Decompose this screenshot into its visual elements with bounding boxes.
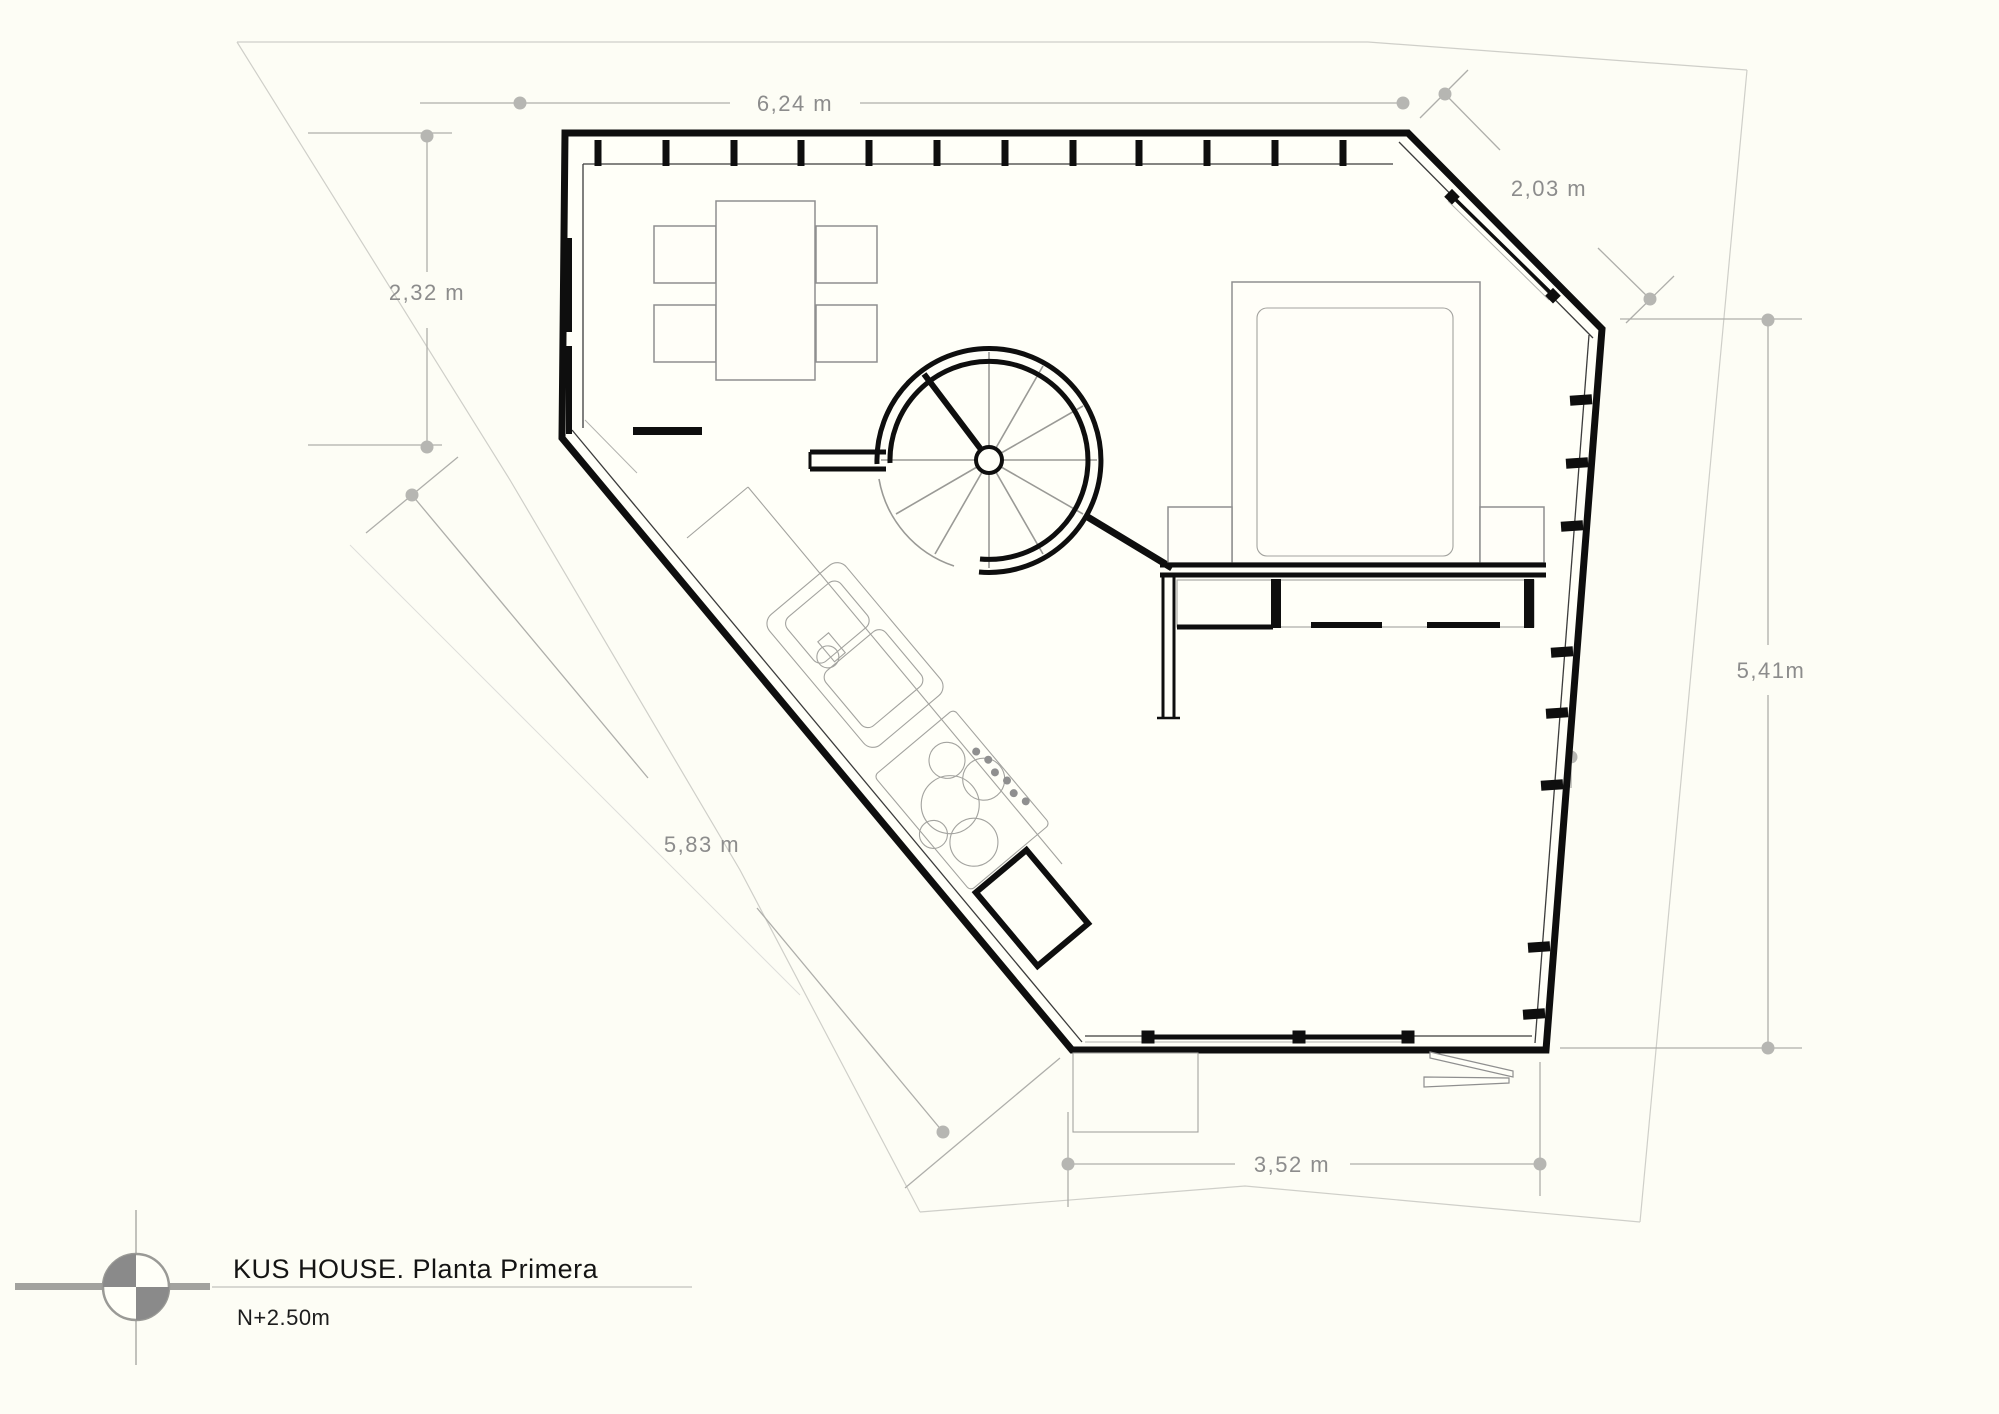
window-bar — [566, 346, 572, 434]
mullion-post — [1136, 140, 1143, 166]
dimension-dot — [1762, 1042, 1775, 1055]
dimension-label: 3,52 m — [1254, 1152, 1330, 1177]
extension-line — [905, 1058, 1060, 1188]
boundary-top-line — [237, 42, 1747, 70]
dimension-label: 6,24 m — [757, 91, 833, 116]
boundary-bottom-line — [920, 1186, 1640, 1222]
dimension-line — [1598, 248, 1650, 299]
dimension-dot — [1762, 314, 1775, 327]
dim-top-width: 6,24 m — [420, 91, 1410, 116]
louver-block — [1566, 457, 1589, 469]
entry-step-outline — [1073, 1053, 1198, 1132]
mullion-post — [1070, 140, 1077, 166]
louver-block — [1546, 707, 1569, 719]
panel-end-block — [1293, 1031, 1306, 1044]
dimension-dot — [1062, 1158, 1075, 1171]
dimension-label: 5,83 m — [664, 832, 740, 857]
panel-end-block — [1402, 1031, 1415, 1044]
louver-block — [1528, 941, 1551, 953]
compass-se-quadrant — [136, 1287, 169, 1320]
mullion-post — [1340, 140, 1347, 166]
mullion-post — [798, 140, 805, 166]
dimension-dot — [421, 441, 434, 454]
mullion-post — [663, 140, 670, 166]
dining-chair — [816, 226, 877, 283]
dimension-dot — [421, 130, 434, 143]
dining-chair — [654, 226, 716, 283]
dimension-label: 2,32 m — [389, 280, 465, 305]
dimension-line — [1445, 94, 1500, 150]
bed-frame — [1232, 282, 1480, 563]
louver-block — [1551, 646, 1574, 658]
mullion-post — [934, 140, 941, 166]
dimension-dot — [1439, 88, 1452, 101]
floor-plan-canvas: 6,24 m 2,03 m 2,32 m 0,50 m — [0, 0, 1999, 1414]
drawing-title: KUS HOUSE. Planta Primera — [233, 1254, 599, 1284]
floor-plan-page: 6,24 m 2,03 m 2,32 m 0,50 m — [0, 0, 1999, 1414]
compass-nw-quadrant — [103, 1254, 136, 1287]
north-indicator-icon — [103, 1254, 169, 1320]
dimension-line — [412, 495, 648, 778]
dimension-dot — [1644, 293, 1657, 306]
stair-center-post — [976, 447, 1002, 473]
louver-block — [1541, 779, 1564, 791]
nightstand-right — [1480, 507, 1544, 563]
dimension-dot — [1397, 97, 1410, 110]
wardrobe-end-post — [1524, 579, 1534, 628]
window-bar — [566, 238, 572, 332]
boundary-right-line — [1640, 70, 1747, 1222]
dimension-dot — [1534, 1158, 1547, 1171]
title-block: KUS HOUSE. Planta Primera N+2.50m — [15, 1210, 692, 1365]
mullion-post — [1204, 140, 1211, 166]
mullion-post — [866, 140, 873, 166]
dimension-dot — [406, 489, 419, 502]
dimension-line — [757, 908, 943, 1132]
dimension-label: 5,41m — [1737, 658, 1806, 683]
mullion-post — [595, 140, 602, 166]
louver-block — [1570, 394, 1593, 406]
dimension-dot — [514, 97, 527, 110]
mullion-post — [731, 140, 738, 166]
wardrobe-divider — [1271, 579, 1281, 628]
door-leaf-wedge — [1430, 1052, 1513, 1077]
dimension-dot — [937, 1126, 950, 1139]
door-leaf-wedge — [1424, 1077, 1509, 1087]
dining-chair — [654, 305, 716, 362]
dimension-label: 2,03 m — [1511, 176, 1587, 201]
drawing-level: N+2.50m — [237, 1305, 330, 1330]
mullion-post — [1002, 140, 1009, 166]
dining-table — [716, 201, 815, 380]
dim-left-upper: 2,32 m — [308, 130, 465, 454]
dining-chair — [816, 305, 877, 362]
mullion-post — [1272, 140, 1279, 166]
louver-block — [1561, 520, 1584, 532]
nightstand-left — [1168, 507, 1232, 563]
panel-end-block — [1142, 1031, 1155, 1044]
louver-block — [1523, 1008, 1546, 1020]
